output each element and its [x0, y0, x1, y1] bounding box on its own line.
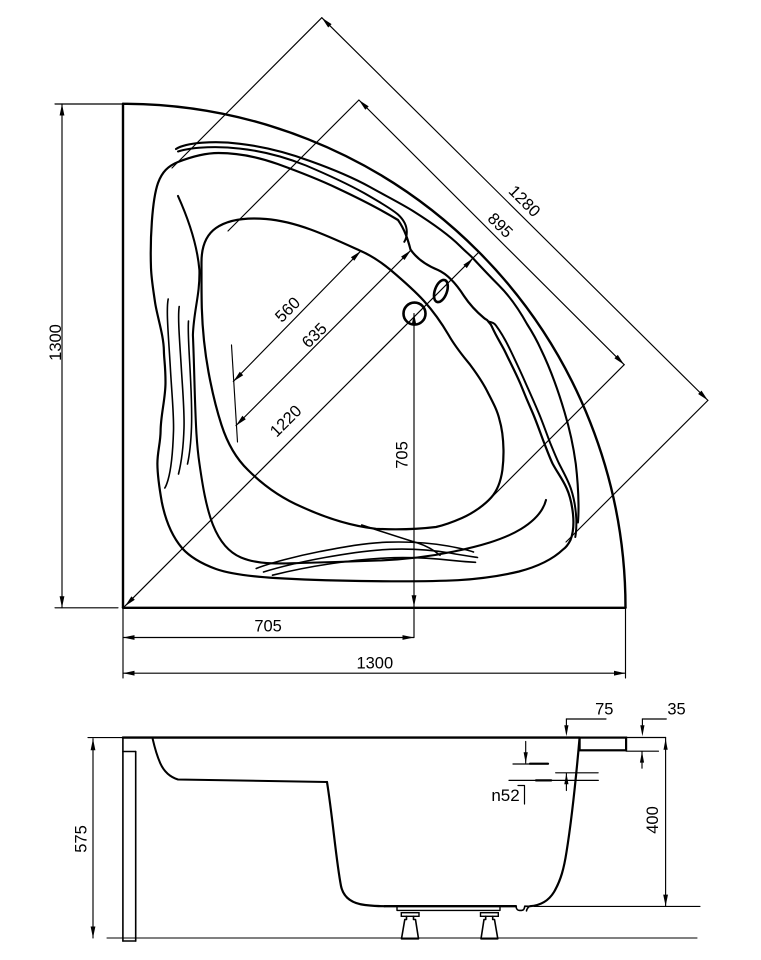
svg-text:n52: n52: [491, 786, 519, 805]
svg-text:705: 705: [254, 618, 282, 636]
svg-text:75: 75: [595, 701, 613, 719]
svg-text:400: 400: [644, 806, 662, 834]
svg-text:575: 575: [73, 825, 91, 853]
svg-text:1300: 1300: [47, 324, 65, 361]
svg-text:705: 705: [394, 441, 412, 469]
svg-text:35: 35: [667, 701, 685, 719]
svg-text:1300: 1300: [356, 655, 393, 673]
